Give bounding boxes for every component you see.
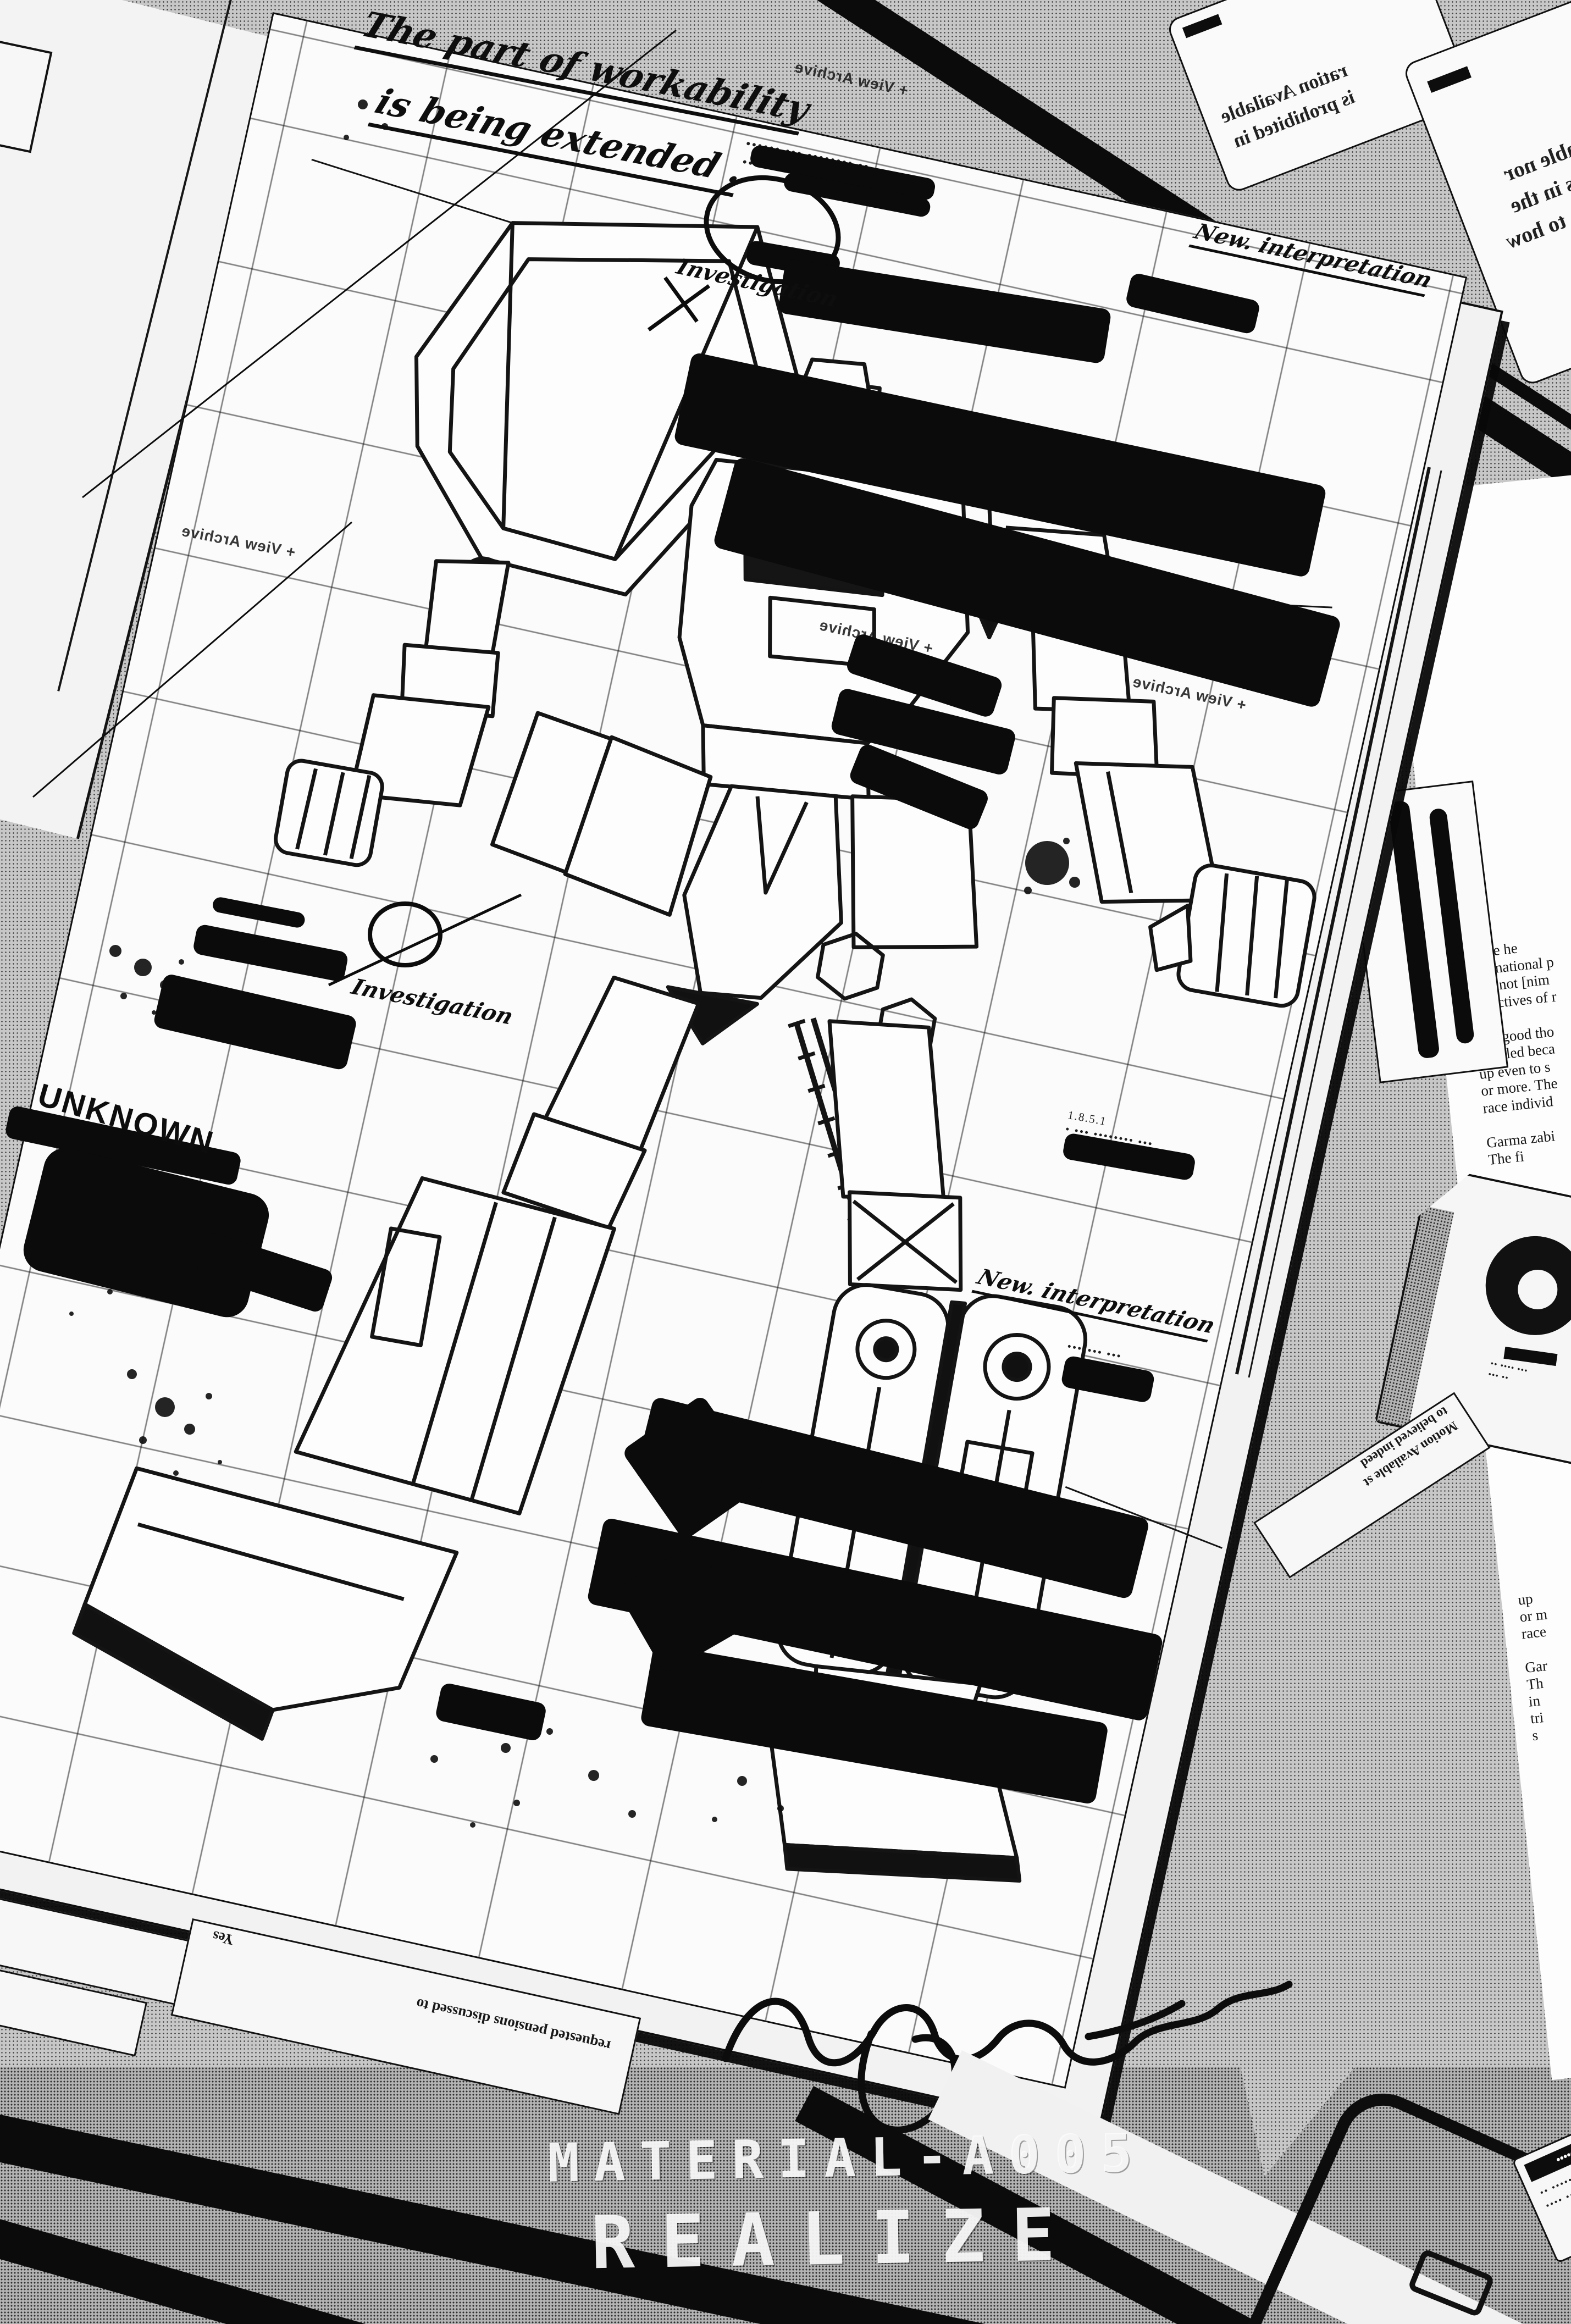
realize-title: REALIZE (572, 2192, 1101, 2286)
cassette-label-text: •• •••• ••• ••• •• (1487, 1358, 1529, 1388)
article-fragment-line: up (1517, 1557, 1571, 1609)
card-tag (1427, 66, 1472, 92)
mirrored-card-large-text: tion Available nor prohibited is in the … (1478, 92, 1571, 257)
card-tag (1182, 14, 1222, 38)
material-code-title: MATERIAL-A005 (539, 2122, 1155, 2194)
redaction-bar (1429, 807, 1475, 1044)
scanned-archive-page: it one he The national p Was not [nim ob… (0, 0, 1571, 2324)
mirrored-card-small-text: ration Available is prohibited in (1216, 56, 1362, 156)
left-fist (274, 759, 385, 867)
